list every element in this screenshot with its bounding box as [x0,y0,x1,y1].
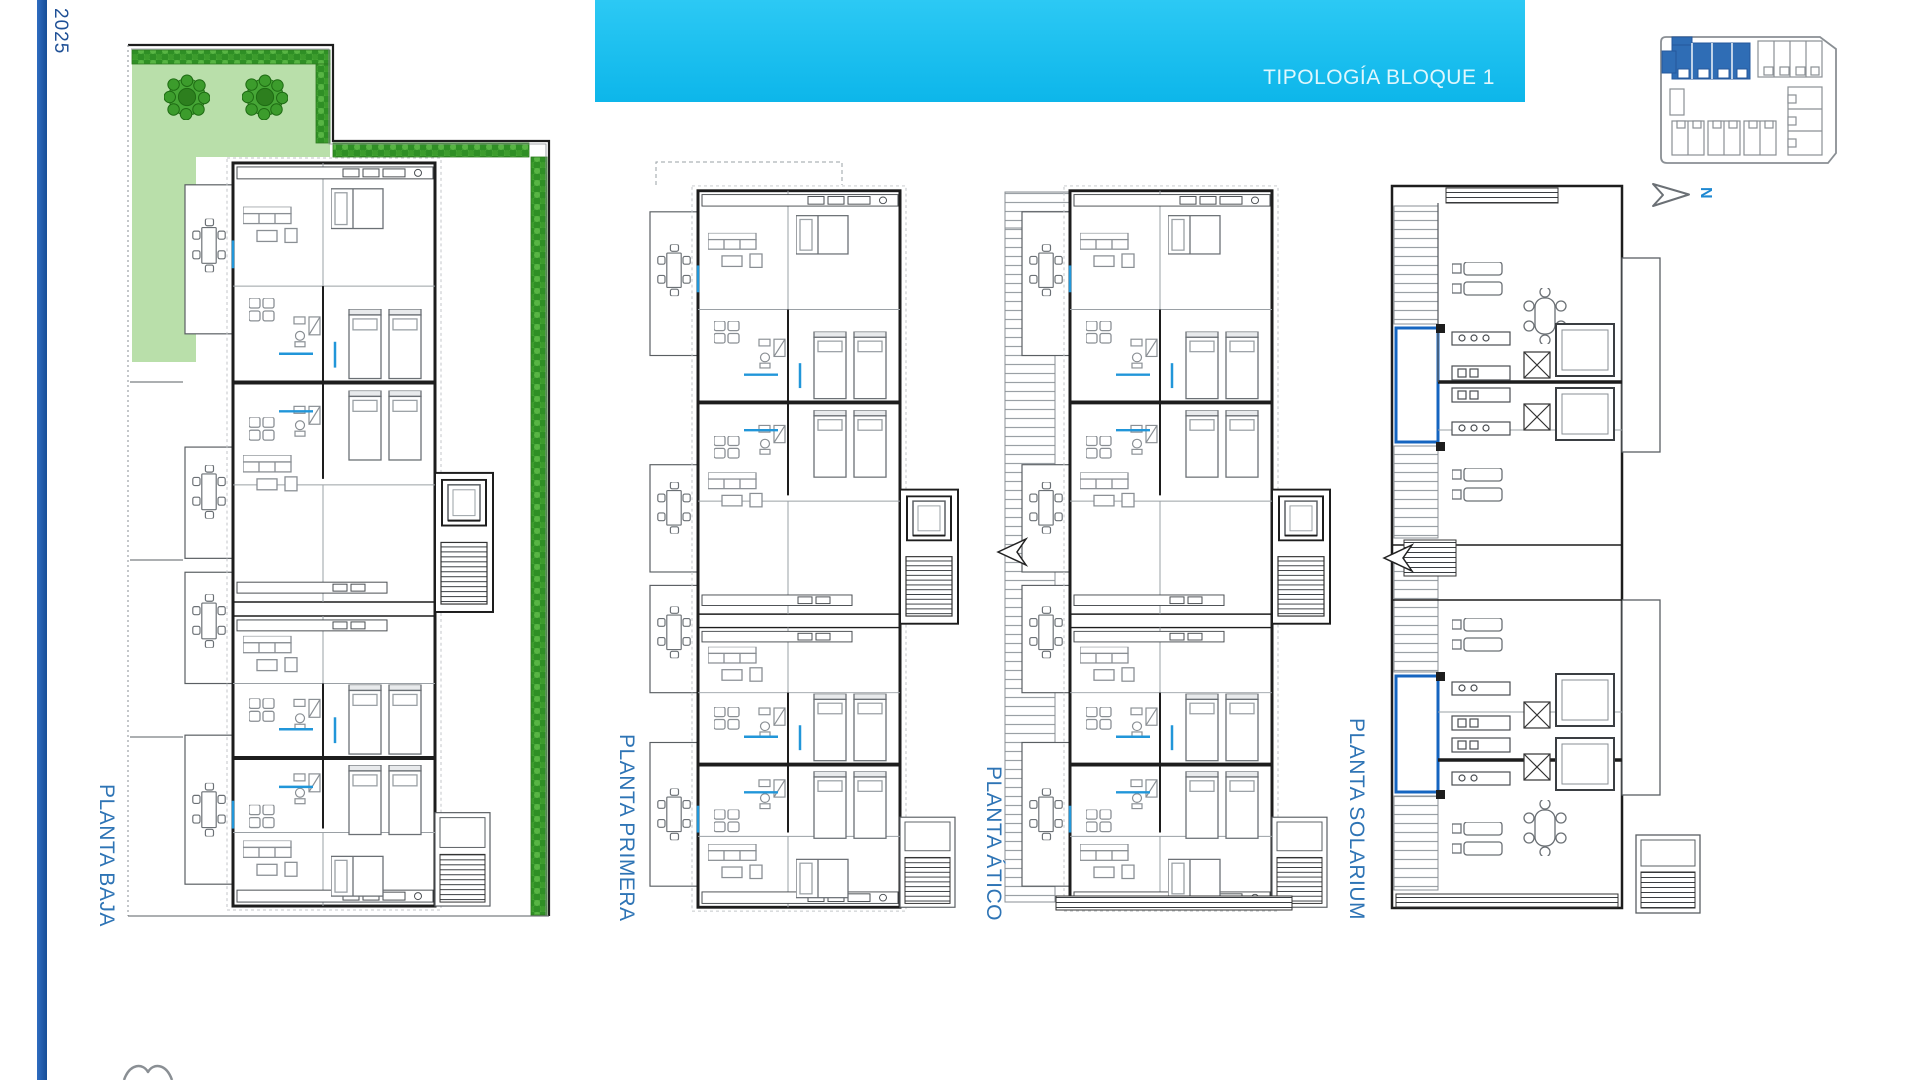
floor-plan-planta-solarium [1360,150,1710,925]
terrace-strip [1056,896,1292,910]
label-planta-primera: PLANTA PRIMERA [614,734,638,922]
left-accent-bar [37,0,47,1080]
label-planta-atico: PLANTA ÁTICO [981,766,1005,921]
floor-plan-planta-atico [995,150,1345,930]
year-label: 2025 [49,8,71,54]
label-planta-baja: PLANTA BAJA [94,784,118,927]
pool [1396,328,1438,442]
header-title: TIPOLOGÍA BLOQUE 1 [1263,66,1495,90]
site-key-plan [1650,25,1850,175]
tree [164,75,210,120]
label-planta-solarium: PLANTA SOLARIUM [1344,718,1368,920]
north-arrow: N [1645,178,1735,218]
logo-fragment [110,1050,190,1080]
floor-plan-planta-baja [100,40,570,925]
header-banner: TIPOLOGÍA BLOQUE 1 [595,0,1525,102]
north-arrow-icon [1653,184,1689,206]
plan-sheet: 2025 TIPOLOGÍA BLOQUE 1 [0,0,1918,1080]
north-label: N [1697,187,1714,199]
pool [1396,676,1438,792]
tree [242,75,288,120]
floor-plan-planta-primera [630,150,975,930]
